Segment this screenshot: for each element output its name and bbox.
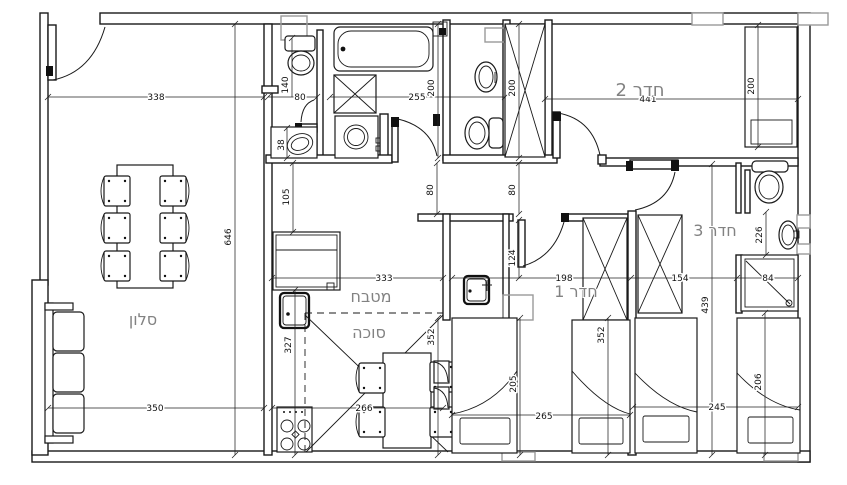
room-label-kitchen: מטבח (351, 287, 392, 306)
wall-wc-shelf (262, 86, 278, 93)
wardrobe-icon (583, 218, 627, 320)
door-pivot (439, 28, 446, 35)
window-icon (797, 215, 810, 228)
dim-label: 200 (747, 77, 757, 94)
chair-icon (160, 251, 189, 281)
room3-door-leaf (630, 160, 678, 169)
window-icon (797, 244, 810, 254)
dim-label: 205 (509, 375, 519, 392)
shower-icon (334, 75, 376, 113)
chair-icon (160, 176, 189, 206)
dim-label: 140 (281, 76, 291, 93)
dim-label: 646 (224, 228, 234, 245)
wall-bath2-left (443, 20, 450, 160)
dim-label: 38 (277, 139, 287, 151)
wall-laundry-stub (380, 114, 388, 160)
chair-icon (101, 176, 130, 206)
dim-label: 255 (408, 93, 425, 103)
dim-label: 80 (426, 184, 436, 196)
chair-icon (101, 213, 130, 243)
sink-icon (779, 221, 799, 249)
basin-icon (464, 276, 492, 304)
bathtub-icon (334, 27, 433, 71)
door-handle (671, 160, 679, 171)
floor-plan: 338 80 255 441 333 198 154 84 350 266 26… (0, 0, 847, 485)
wall-closet-stub (545, 20, 552, 158)
kitchen-sink-icon (280, 293, 309, 328)
beds (434, 318, 800, 453)
dim-label: 265 (535, 412, 552, 422)
wall-bath3-screen-b (745, 170, 750, 213)
wall-left-upper (40, 13, 48, 285)
sink-icon (475, 62, 497, 92)
wall-hall-south-a (418, 214, 513, 221)
window-icon (798, 13, 828, 25)
toilet-icon (285, 36, 315, 75)
entrance-door-arc (53, 27, 105, 80)
dim-label: 154 (671, 274, 688, 284)
cooktop-icon (277, 407, 312, 452)
window-icon (692, 13, 723, 25)
wardrobe-icon (638, 215, 682, 313)
wall-nook-left (443, 214, 450, 320)
dim-label: 352 (597, 326, 607, 343)
dim-label: 200 (427, 79, 437, 96)
dim-label: 352 (427, 328, 437, 345)
chair-icon (356, 363, 385, 393)
washing-machine-icon (335, 116, 380, 158)
kitchen-counter (273, 232, 340, 290)
dim-label: 327 (284, 336, 294, 353)
door-handle (626, 161, 633, 171)
room2-door-arc (558, 113, 600, 155)
toilet-icon (465, 117, 503, 149)
floor-plan-canvas: 338 80 255 441 333 198 154 84 350 266 26… (0, 0, 847, 485)
room-label-sukkah: סוכה (352, 323, 386, 342)
door-handle (46, 66, 53, 76)
door-jamb (598, 155, 606, 164)
dim-label: 338 (147, 93, 164, 103)
door-handle (391, 117, 399, 127)
dim-label: 206 (754, 373, 764, 390)
room-label-room1: חדר 1 (554, 282, 598, 301)
hall-door-arc (398, 119, 437, 156)
dim-label: 124 (508, 249, 518, 266)
door-handle (561, 213, 569, 222)
salon-furniture (45, 165, 189, 443)
dim-label: 333 (375, 274, 392, 284)
chair-icon (160, 213, 189, 243)
dim-label: 226 (755, 226, 765, 243)
dim-label: 105 (282, 188, 292, 205)
bed-icon (452, 318, 517, 453)
sukkah-table (383, 353, 431, 448)
wall-bath3-screen-a (736, 163, 741, 213)
sofa-icon (45, 303, 84, 443)
dim-label: 266 (355, 404, 372, 414)
door-jamb (433, 114, 440, 126)
door-handle (553, 112, 561, 121)
chair-icon (101, 251, 130, 281)
toilet-icon (752, 161, 788, 203)
wc-door-arc (301, 100, 314, 122)
dim-label: 80 (294, 93, 306, 103)
room3-door-arc (635, 172, 675, 210)
room1-door-arc (523, 222, 564, 266)
room-label-salon: סלון (129, 310, 157, 329)
room-label-room3: חדר 3 (693, 221, 737, 240)
room-label-room2: חדר 2 (616, 80, 665, 101)
dim-label: 350 (146, 404, 163, 414)
dim-label: 439 (701, 296, 711, 313)
bed-icon (737, 318, 800, 453)
dim-label: 200 (508, 79, 518, 96)
dim-label: 84 (762, 274, 774, 284)
dim-label: 80 (508, 184, 518, 196)
bed-icon (635, 318, 697, 453)
dim-label: 245 (708, 403, 725, 413)
window-icon (485, 28, 505, 42)
